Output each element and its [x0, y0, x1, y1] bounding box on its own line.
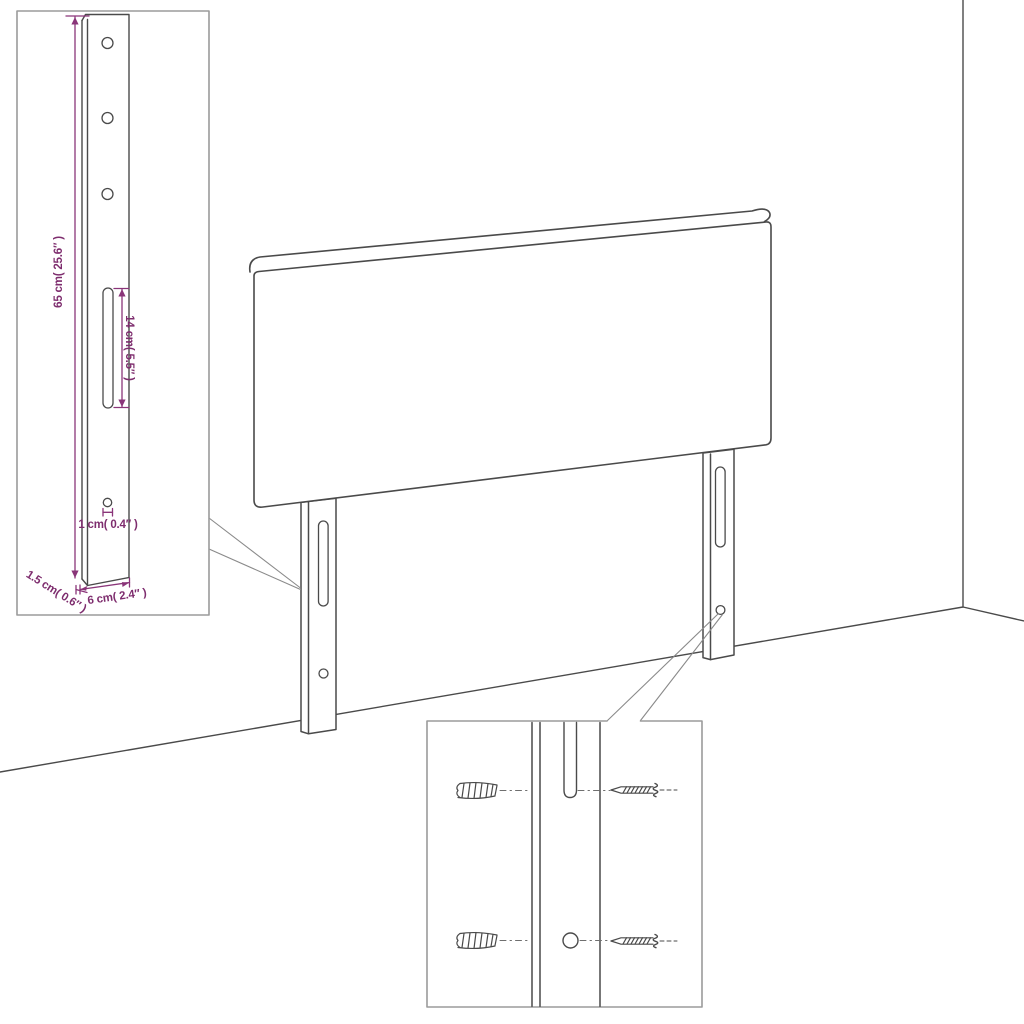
diagram-canvas: 65 cm( 25.6″ ) 14 cm( 5.5″ ) 1 cm( 0.4″ …: [0, 0, 1024, 1024]
right-leg: [703, 449, 734, 659]
left-leg: [301, 498, 336, 734]
inset-mounting-detail: [427, 721, 702, 1007]
left-leg-screw-hole: [319, 669, 328, 678]
dim-label-height: 65 cm( 25.6″ ): [53, 236, 65, 308]
left-leg-slot: [319, 521, 329, 606]
dim-label-hole: 1 cm( 0.4″ ): [78, 519, 137, 531]
right-leg-slot: [716, 467, 726, 547]
dim-label-slot: 14 cm( 5.5″ ): [123, 315, 135, 381]
headboard-panel: [250, 209, 771, 507]
assembly-diagram-lineart: [0, 0, 1024, 1024]
right-leg-screw-hole: [716, 606, 725, 615]
callout-lines-left-inset: [209, 518, 301, 590]
